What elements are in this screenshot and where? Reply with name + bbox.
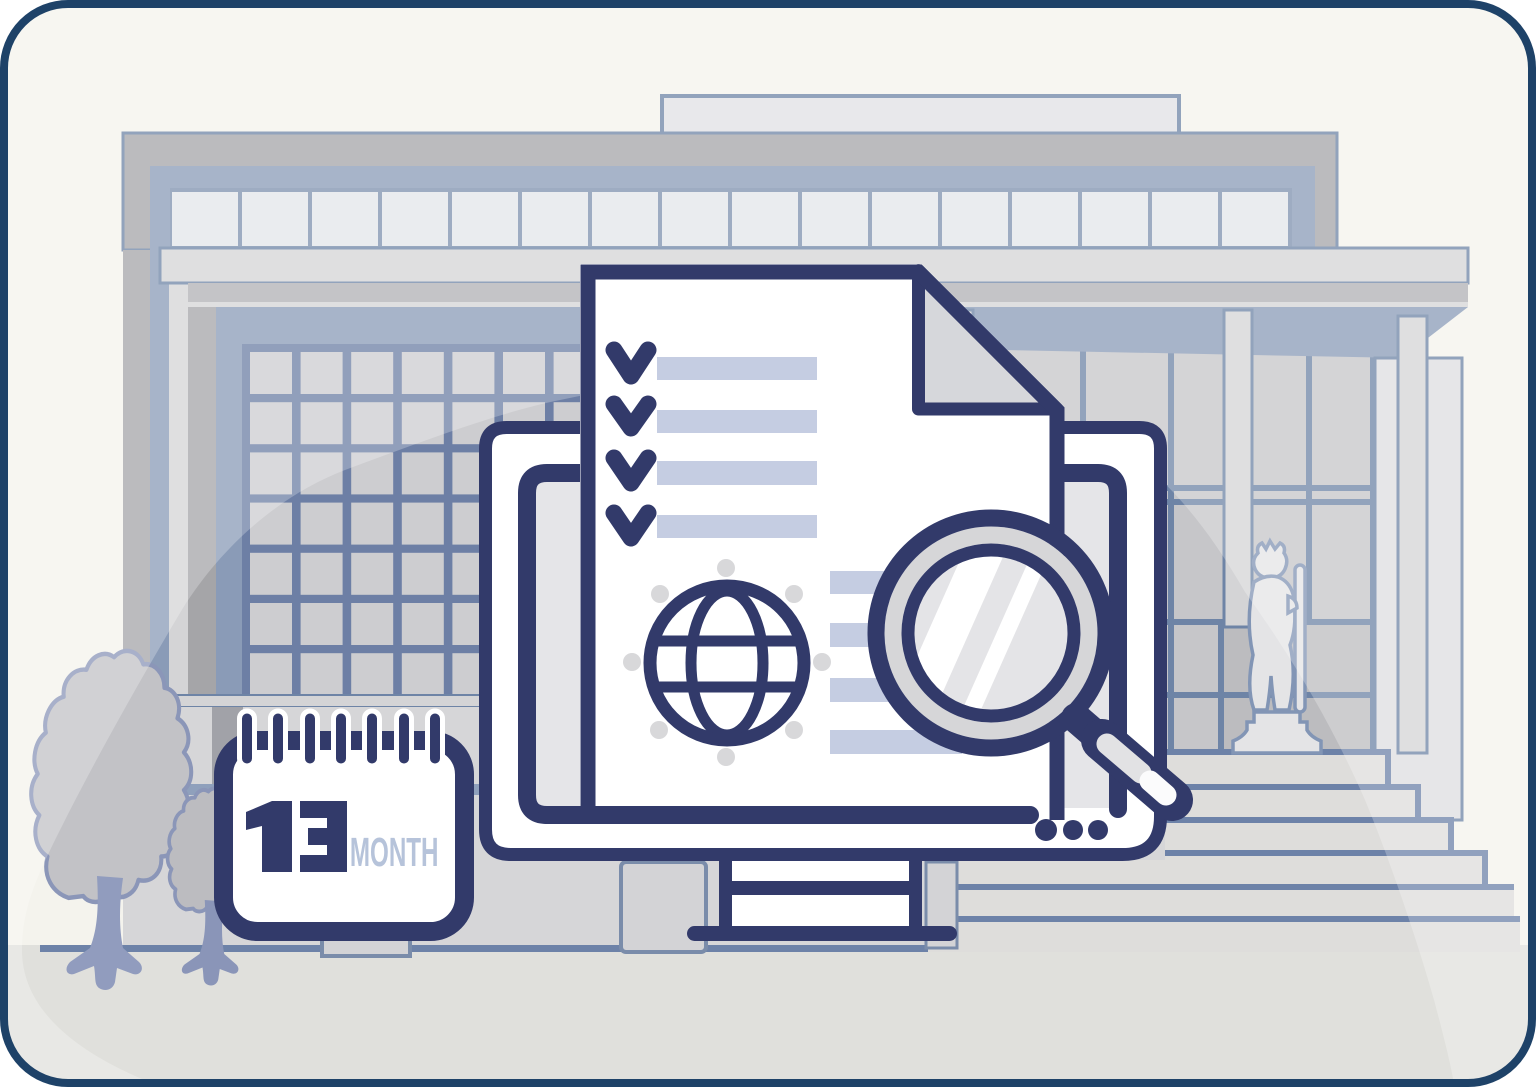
svg-text:MONTH: MONTH [350, 831, 439, 876]
